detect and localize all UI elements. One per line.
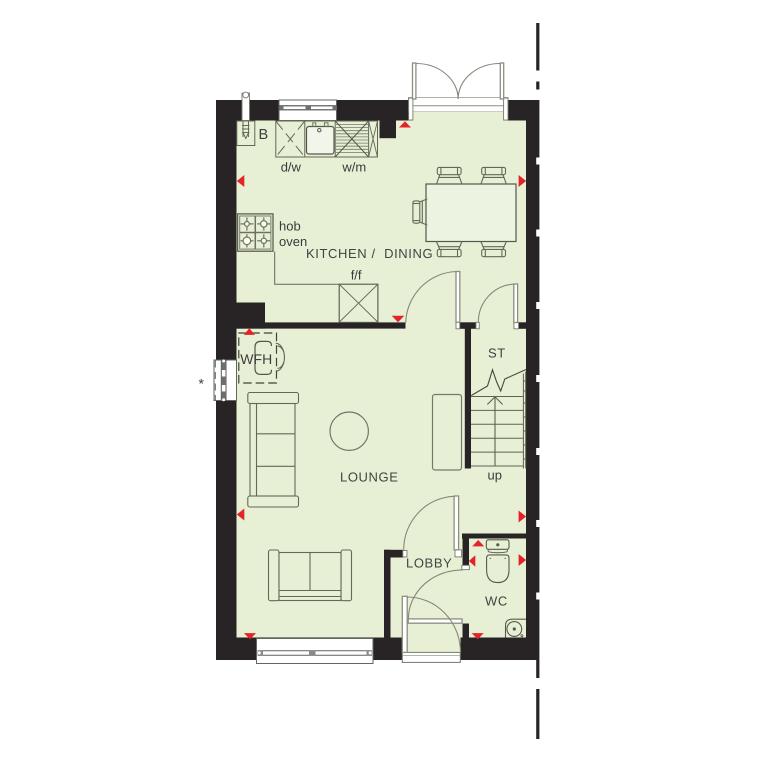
svg-text:d/w: d/w [281, 160, 302, 175]
svg-text:LOBBY: LOBBY [406, 556, 452, 571]
svg-text:WFH: WFH [240, 351, 272, 367]
svg-text:B: B [259, 127, 269, 143]
svg-text:up: up [488, 468, 502, 483]
svg-text:KITCHEN / DINING: KITCHEN / DINING [306, 246, 433, 261]
svg-text:hob: hob [279, 219, 301, 234]
svg-text:WC: WC [485, 593, 508, 608]
svg-text:w/m: w/m [341, 160, 366, 175]
svg-text:*: * [199, 376, 205, 392]
svg-text:f/f: f/f [351, 268, 362, 283]
svg-text:ST: ST [488, 346, 506, 361]
svg-text:LOUNGE: LOUNGE [340, 470, 399, 485]
svg-text:oven: oven [279, 234, 307, 249]
